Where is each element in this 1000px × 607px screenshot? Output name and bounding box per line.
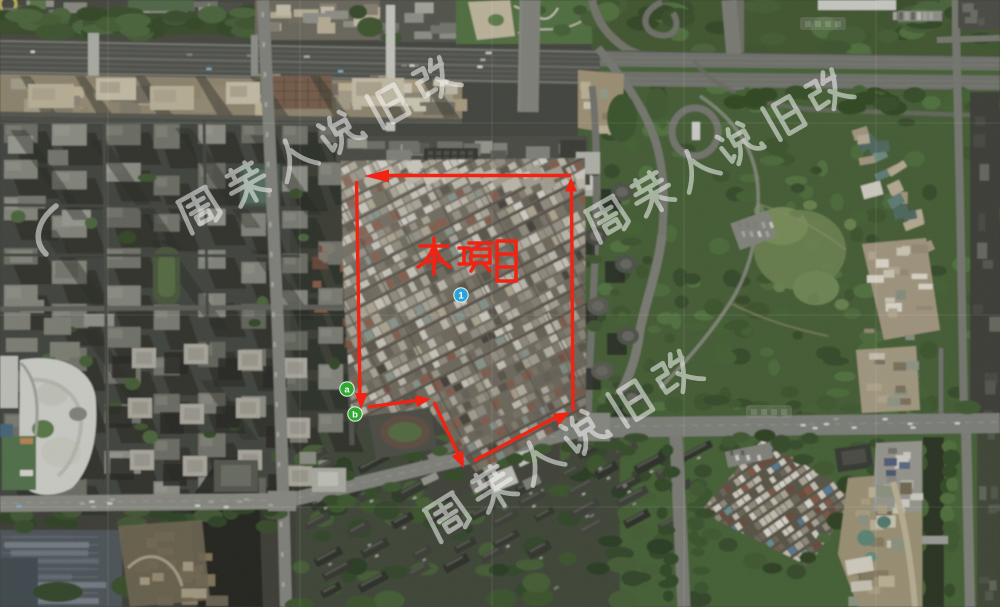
- svg-text:1: 1: [458, 290, 464, 301]
- svg-text:b: b: [352, 409, 358, 420]
- svg-text:a: a: [344, 384, 350, 395]
